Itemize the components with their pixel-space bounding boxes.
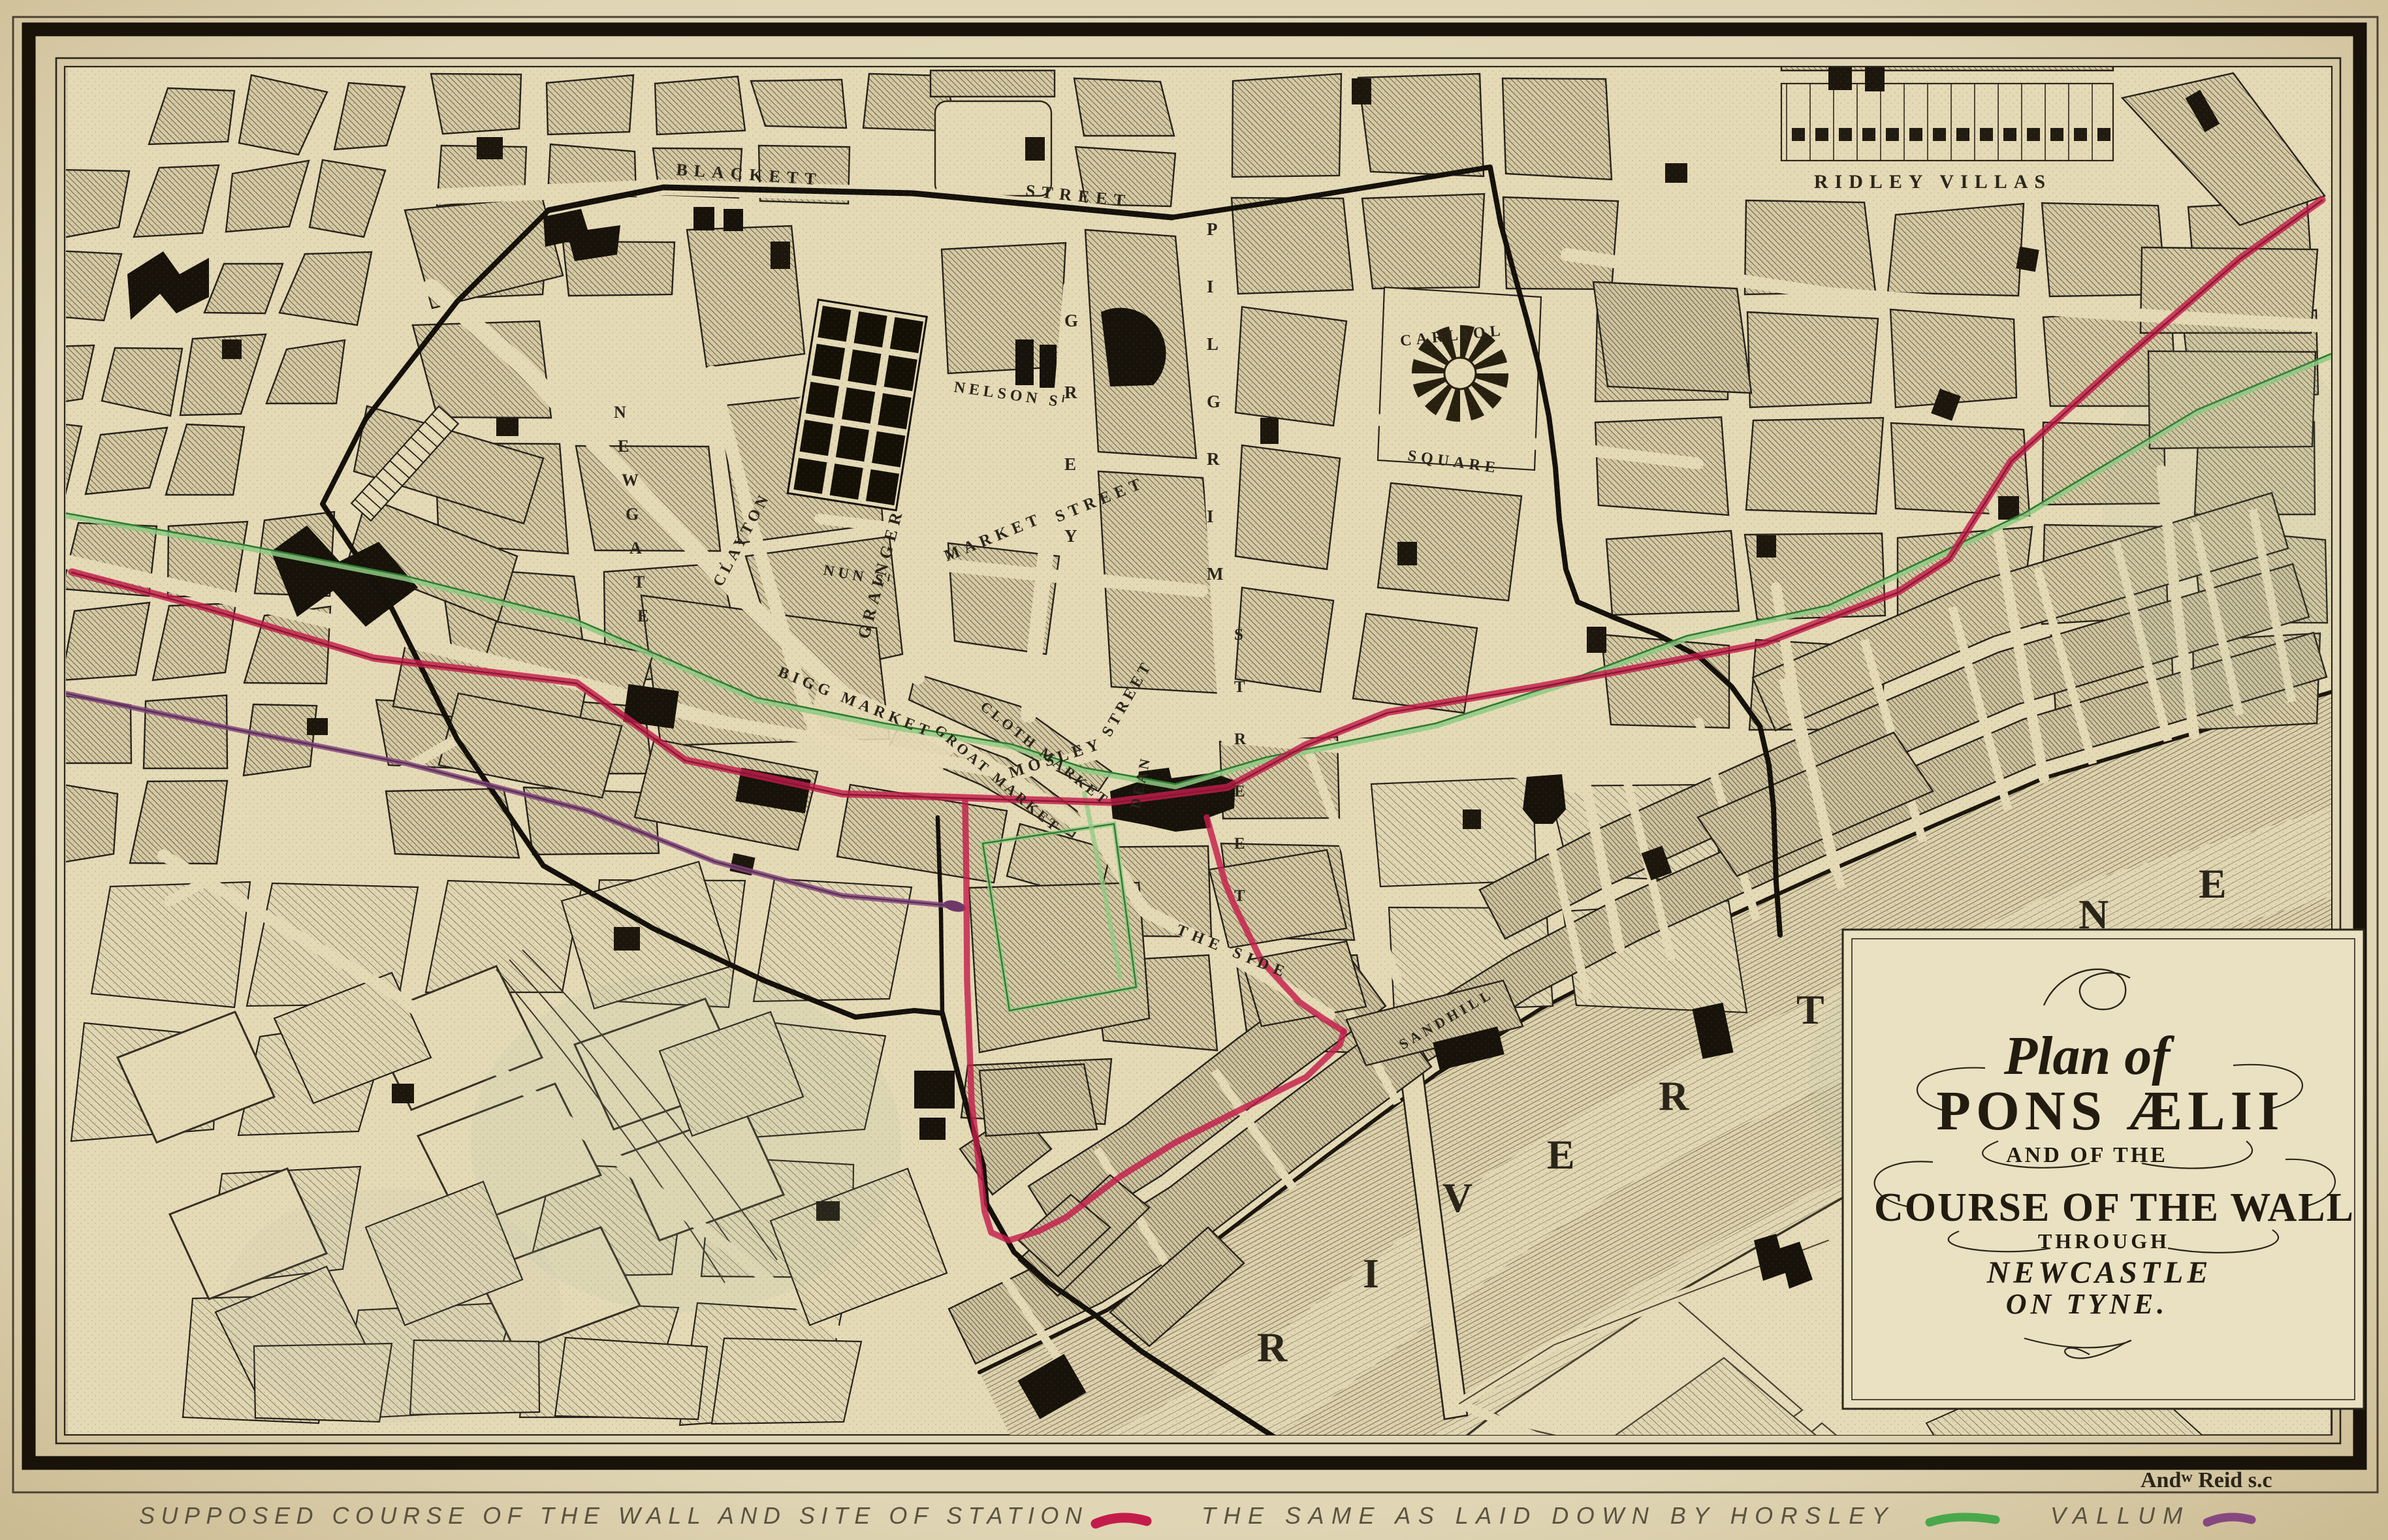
- svg-text:I: I: [1363, 1250, 1379, 1296]
- svg-text:ON TYNE.: ON TYNE.: [2006, 1288, 2168, 1320]
- svg-text:COURSE OF THE WALL: COURSE OF THE WALL: [1874, 1186, 2355, 1230]
- svg-text:VALLUM: VALLUM: [2050, 1502, 2190, 1529]
- svg-text:E: E: [1234, 835, 1245, 853]
- svg-text:A: A: [629, 539, 642, 558]
- svg-text:P: P: [1207, 219, 1218, 239]
- svg-text:E: E: [1547, 1131, 1575, 1178]
- svg-text:E: E: [2199, 860, 2227, 907]
- svg-text:R: R: [1207, 449, 1220, 469]
- svg-text:R: R: [1257, 1324, 1288, 1370]
- svg-text:T: T: [1234, 887, 1245, 905]
- svg-text:E: E: [618, 437, 629, 456]
- svg-text:V: V: [1442, 1174, 1473, 1221]
- svg-text:THE SAME AS LAID DOWN BY HORSL: THE SAME AS LAID DOWN BY HORSLEY: [1202, 1502, 1895, 1529]
- svg-text:I: I: [1207, 507, 1214, 526]
- svg-text:W: W: [622, 471, 639, 490]
- svg-text:S: S: [1234, 626, 1243, 644]
- svg-text:L: L: [1207, 334, 1218, 354]
- svg-text:R: R: [1234, 731, 1247, 748]
- svg-text:G: G: [626, 505, 639, 524]
- svg-text:SUPPOSED COURSE OF THE WALL AN: SUPPOSED COURSE OF THE WALL AND SITE OF …: [139, 1502, 1088, 1529]
- svg-text:NEWCASTLE: NEWCASTLE: [1986, 1255, 2212, 1290]
- svg-text:T: T: [1234, 678, 1245, 696]
- svg-text:Plan of: Plan of: [2003, 1026, 2174, 1086]
- svg-text:AND OF THE: AND OF THE: [2006, 1143, 2168, 1167]
- svg-text:R: R: [1659, 1073, 1689, 1119]
- svg-text:T: T: [1796, 986, 1824, 1033]
- svg-text:G: G: [1064, 311, 1078, 330]
- svg-text:E: E: [637, 606, 648, 625]
- svg-text:PONS ÆLII: PONS ÆLII: [1936, 1079, 2284, 1142]
- svg-text:I: I: [1207, 277, 1214, 296]
- svg-text:THROUGH: THROUGH: [2038, 1229, 2170, 1253]
- svg-text:Y: Y: [1064, 526, 1077, 546]
- svg-text:Andw Reid s.c: Andw Reid s.c: [2141, 1468, 2272, 1492]
- svg-text:T: T: [633, 573, 645, 591]
- svg-text:E: E: [1064, 454, 1076, 474]
- svg-text:M: M: [1207, 564, 1223, 584]
- svg-text:E: E: [1234, 783, 1245, 800]
- svg-text:N: N: [614, 403, 626, 422]
- svg-text:G: G: [1207, 392, 1220, 411]
